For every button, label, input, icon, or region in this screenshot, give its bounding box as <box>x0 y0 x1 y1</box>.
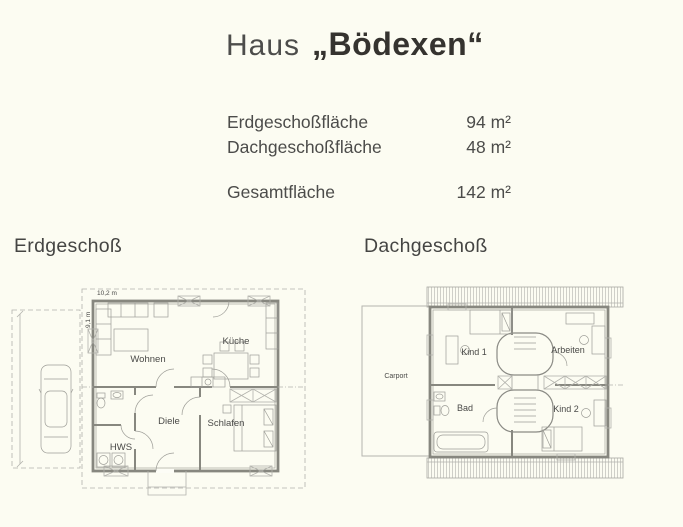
washer-icon <box>97 453 125 467</box>
desk-icon <box>582 400 607 426</box>
title-house-name: „Bödexen“ <box>312 26 484 63</box>
floorplan-dachgeschoss: Carport <box>352 280 632 485</box>
page-title: Haus „Bödexen“ <box>226 26 484 63</box>
outer-wall <box>430 307 608 457</box>
carport-label: Carport <box>384 373 407 380</box>
title-prefix: Haus <box>226 29 300 63</box>
room-label-hws: HWS <box>110 442 132 453</box>
area-total-value: 142 m² <box>439 182 511 203</box>
area-row-label: Erdgeschoßfläche <box>227 112 439 133</box>
interior-wall <box>430 307 608 457</box>
area-row-value: 48 m² <box>439 137 511 158</box>
room-label-bad: Bad <box>457 403 473 413</box>
wardrobe-icon <box>230 389 276 402</box>
bath-fixtures-icon <box>434 392 488 452</box>
room-label-kueche: Küche <box>223 336 250 347</box>
car-icon <box>39 365 73 453</box>
area-table: Erdgeschoßfläche 94 m² Dachgeschoßfläche… <box>227 112 517 203</box>
bed-icon <box>542 427 582 451</box>
carport-outline <box>12 310 80 468</box>
dimension-label-width: 10,2 m <box>97 290 117 297</box>
wardrobe-icon <box>498 376 606 389</box>
roof-outline <box>82 289 305 488</box>
room-label-kind2: Kind 2 <box>553 404 579 414</box>
bed-icon <box>470 310 512 334</box>
interior-wall <box>93 387 278 471</box>
floorplan-erdgeschoss: 10,2 m 9,1 m Wohnen Küche Diele Schlafen… <box>8 281 310 527</box>
area-total-label: Gesamtfläche <box>227 182 439 203</box>
section-heading-dachgeschoss: Dachgeschoß <box>364 235 488 258</box>
dining-table-icon <box>203 342 259 379</box>
room-label-wohnen: Wohnen <box>130 354 165 365</box>
wc-fixtures-icon <box>97 391 123 408</box>
room-label-kind1: Kind 1 <box>461 347 487 357</box>
entrance-porch <box>148 453 186 495</box>
section-heading-erdgeschoss: Erdgeschoß <box>14 235 122 258</box>
window-icon <box>427 304 611 460</box>
room-label-diele: Diele <box>158 416 180 427</box>
coffee-table-icon <box>114 329 148 351</box>
carport-roof <box>362 306 430 456</box>
room-label-schlafen: Schlafen <box>208 418 245 429</box>
dimension-label-height: 9,1 m <box>85 312 92 328</box>
dimension-line <box>17 311 23 467</box>
room-label-arbeiten: Arbeiten <box>551 345 585 355</box>
area-row-value: 94 m² <box>439 112 511 133</box>
area-row-label: Dachgeschoßfläche <box>227 137 439 158</box>
brochure-page: Haus „Bödexen“ Erdgeschoßfläche 94 m² Da… <box>0 0 683 527</box>
roof-hatch-band <box>427 287 623 478</box>
